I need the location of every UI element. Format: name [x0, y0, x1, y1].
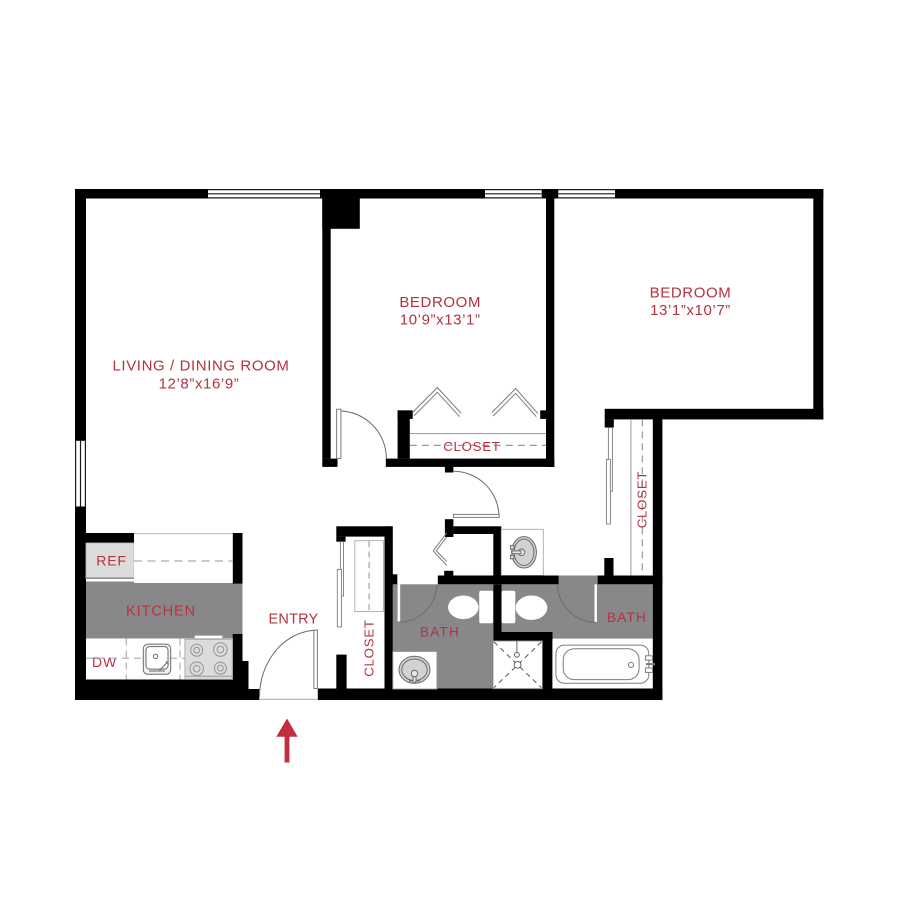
- svg-text:13’1”x10’7”: 13’1”x10’7”: [650, 302, 731, 319]
- svg-text:BEDROOM: BEDROOM: [650, 285, 732, 302]
- svg-text:BATH: BATH: [607, 610, 647, 625]
- svg-text:CLOSET: CLOSET: [635, 471, 650, 529]
- svg-text:BATH: BATH: [420, 625, 460, 640]
- svg-text:12’8”x16’9”: 12’8”x16’9”: [159, 376, 240, 393]
- svg-text:REF: REF: [96, 553, 126, 569]
- svg-text:DW: DW: [92, 654, 117, 670]
- svg-text:10’9”x13’1”: 10’9”x13’1”: [400, 311, 481, 328]
- svg-text:LIVING / DINING ROOM: LIVING / DINING ROOM: [112, 358, 289, 375]
- svg-text:CLOSET: CLOSET: [443, 439, 501, 454]
- svg-text:KITCHEN: KITCHEN: [126, 604, 196, 620]
- svg-text:ENTRY: ENTRY: [269, 612, 319, 628]
- svg-text:BEDROOM: BEDROOM: [399, 294, 481, 311]
- svg-text:CLOSET: CLOSET: [362, 619, 377, 677]
